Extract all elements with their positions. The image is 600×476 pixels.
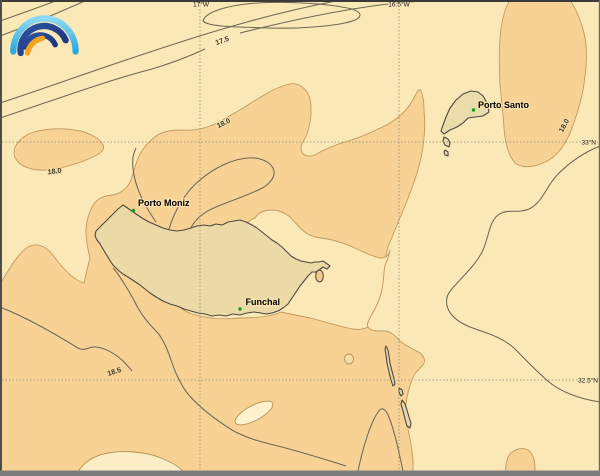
svg-text:33°N: 33°N (581, 139, 596, 147)
svg-text:Funchal: Funchal (246, 297, 281, 307)
svg-text:Porto Moniz: Porto Moniz (138, 198, 190, 208)
svg-text:32.5°N: 32.5°N (578, 377, 598, 385)
svg-text:Porto Santo: Porto Santo (478, 100, 530, 110)
svg-text:18.0: 18.0 (47, 166, 62, 177)
